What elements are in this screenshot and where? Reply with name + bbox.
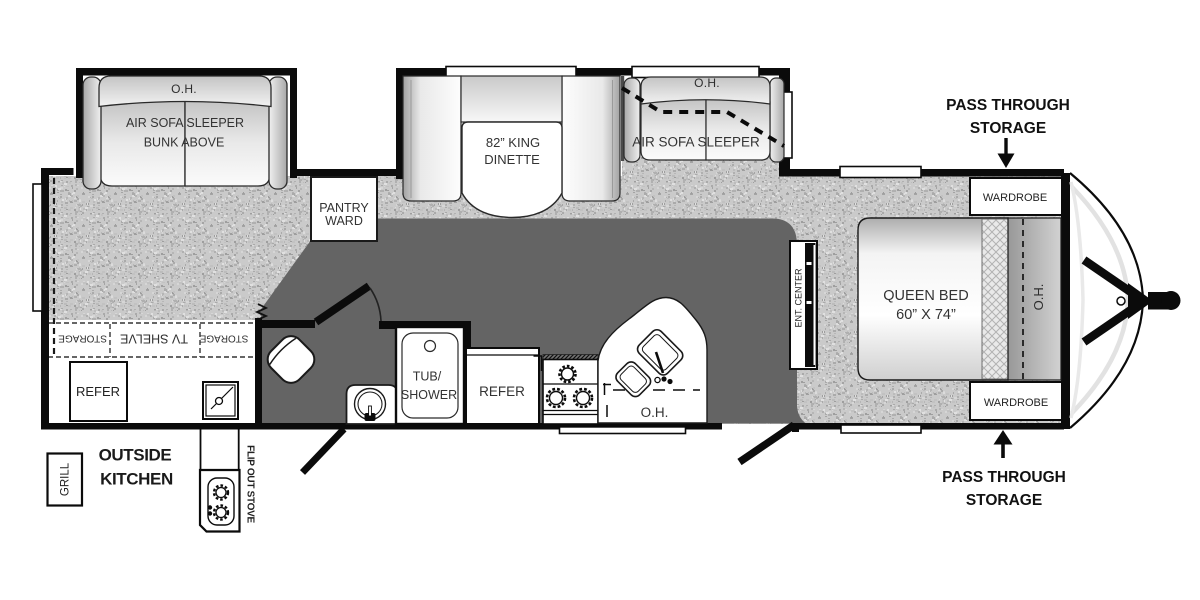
svg-text:ENT. CENTER: ENT. CENTER — [794, 268, 804, 328]
svg-text:STORAGE: STORAGE — [58, 332, 107, 343]
svg-text:AIR SOFA SLEEPER: AIR SOFA SLEEPER — [126, 116, 244, 130]
svg-text:60” X 74”: 60” X 74” — [896, 307, 956, 323]
svg-text:PASS THROUGH: PASS THROUGH — [942, 469, 1066, 486]
svg-text:BUNK ABOVE: BUNK ABOVE — [144, 136, 225, 150]
svg-text:REFER: REFER — [479, 384, 525, 399]
svg-text:SHOWER: SHOWER — [401, 388, 457, 402]
svg-text:WARD: WARD — [325, 214, 363, 228]
svg-text:O.H.: O.H. — [1031, 284, 1046, 311]
svg-text:PASS THROUGH: PASS THROUGH — [946, 97, 1070, 114]
svg-text:REFER: REFER — [76, 384, 120, 399]
svg-text:PANTRY: PANTRY — [319, 201, 369, 215]
svg-text:WARDROBE: WARDROBE — [984, 397, 1048, 409]
svg-text:DINETTE: DINETTE — [484, 152, 540, 167]
svg-text:STORAGE: STORAGE — [970, 120, 1046, 137]
svg-text:GRILL: GRILL — [60, 462, 72, 496]
svg-text:82” KING: 82” KING — [486, 135, 540, 150]
svg-text:O.H.: O.H. — [694, 76, 720, 90]
svg-text:AIR SOFA SLEEPER: AIR SOFA SLEEPER — [632, 135, 760, 150]
svg-text:STORAGE: STORAGE — [966, 492, 1042, 509]
svg-text:O.H.: O.H. — [641, 405, 669, 420]
svg-text:FLIP OUT STOVE: FLIP OUT STOVE — [245, 445, 256, 523]
svg-text:TUB/: TUB/ — [413, 370, 442, 384]
svg-text:KITCHEN: KITCHEN — [100, 470, 173, 489]
svg-text:STORAGE: STORAGE — [199, 332, 248, 343]
svg-text:OUTSIDE: OUTSIDE — [99, 446, 172, 465]
svg-text:QUEEN BED: QUEEN BED — [883, 288, 968, 304]
svg-text:TV SHELVE: TV SHELVE — [120, 332, 188, 346]
svg-text:O.H.: O.H. — [171, 82, 197, 96]
svg-text:WARDROBE: WARDROBE — [983, 192, 1047, 204]
